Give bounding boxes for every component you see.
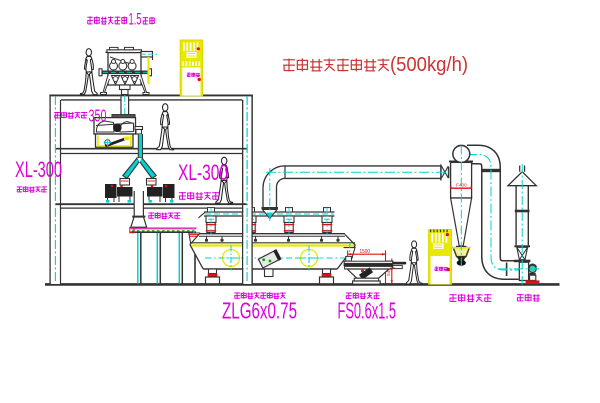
svg-text:1.5: 1.5 (129, 11, 142, 29)
svg-text:FS0.6x1.5: FS0.6x1.5 (338, 298, 397, 324)
svg-text:XL-300: XL-300 (178, 160, 228, 185)
svg-text:350: 350 (89, 106, 107, 126)
svg-text:ZLG6x0.75: ZLG6x0.75 (222, 298, 297, 324)
svg-text:1500: 1500 (360, 249, 371, 255)
svg-text:XL-300: XL-300 (15, 157, 62, 182)
svg-text:(500kg/h): (500kg/h) (390, 53, 468, 76)
